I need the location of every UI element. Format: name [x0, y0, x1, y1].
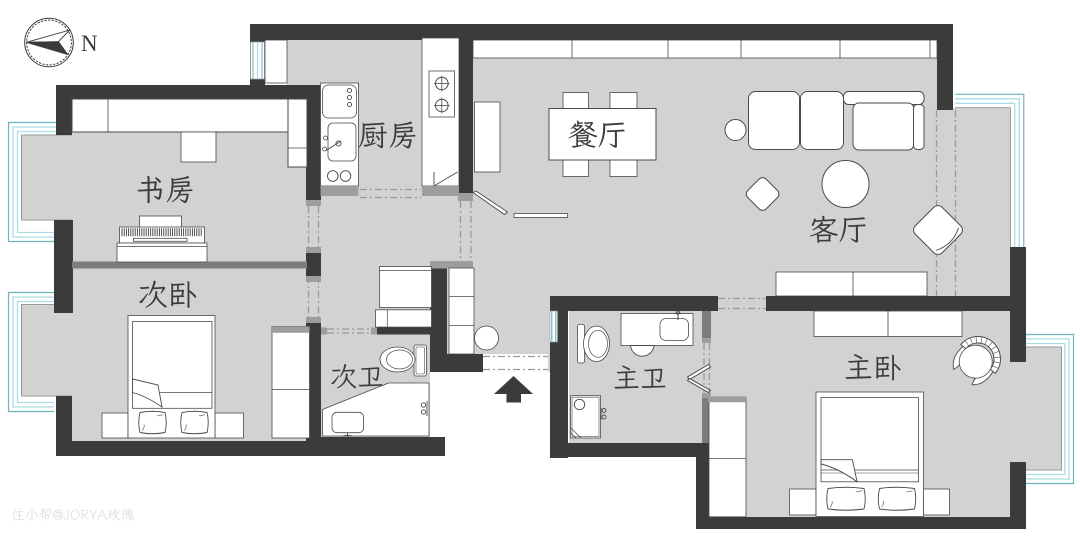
svg-text:N: N [81, 31, 98, 56]
